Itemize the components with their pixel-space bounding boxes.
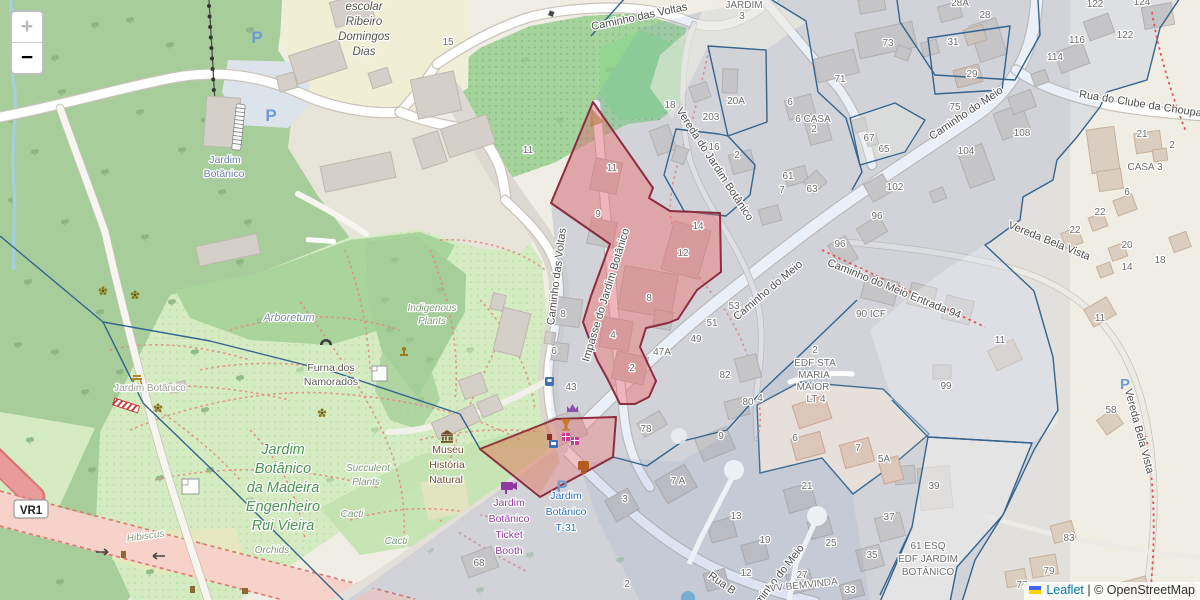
svg-text:Plants: Plants bbox=[352, 477, 380, 488]
svg-text:83: 83 bbox=[1063, 533, 1075, 544]
svg-text:EDF STA: EDF STA bbox=[794, 358, 836, 369]
svg-text:18: 18 bbox=[664, 100, 676, 111]
svg-text:35: 35 bbox=[866, 550, 878, 561]
svg-text:14: 14 bbox=[1121, 262, 1133, 273]
svg-text:História: História bbox=[429, 459, 465, 471]
svg-text:78: 78 bbox=[640, 424, 652, 435]
svg-text:Arboretum: Arboretum bbox=[262, 312, 314, 324]
svg-text:58: 58 bbox=[1105, 405, 1117, 416]
svg-text:7: 7 bbox=[779, 185, 785, 196]
svg-text:122: 122 bbox=[1087, 0, 1104, 10]
svg-text:102: 102 bbox=[887, 182, 904, 193]
svg-text:71: 71 bbox=[834, 74, 846, 85]
svg-text:14: 14 bbox=[692, 221, 704, 232]
svg-text:6: 6 bbox=[551, 346, 557, 357]
svg-text:CASA 3: CASA 3 bbox=[1127, 162, 1162, 173]
svg-text:3: 3 bbox=[622, 494, 628, 505]
svg-text:104: 104 bbox=[958, 146, 975, 157]
svg-text:75: 75 bbox=[949, 102, 961, 113]
svg-text:13: 13 bbox=[730, 511, 742, 522]
svg-text:49: 49 bbox=[690, 334, 702, 345]
svg-text:Plants: Plants bbox=[418, 316, 446, 327]
svg-text:Indigenous: Indigenous bbox=[408, 303, 457, 314]
svg-text:BOTÂNICO: BOTÂNICO bbox=[902, 565, 954, 578]
svg-text:Namorados: Namorados bbox=[304, 376, 358, 388]
svg-text:7: 7 bbox=[855, 443, 861, 454]
svg-text:6: 6 bbox=[787, 97, 793, 108]
svg-text:Ticket: Ticket bbox=[495, 529, 523, 541]
svg-text:7 A: 7 A bbox=[671, 476, 686, 487]
svg-text:VR1: VR1 bbox=[20, 505, 43, 517]
svg-text:Jardim: Jardim bbox=[209, 154, 241, 166]
svg-text:Rui Vieira: Rui Vieira bbox=[252, 518, 315, 534]
svg-text:29: 29 bbox=[966, 69, 978, 80]
svg-text:Jardim: Jardim bbox=[493, 497, 525, 509]
svg-text:Natural: Natural bbox=[429, 474, 463, 486]
svg-text:4: 4 bbox=[757, 393, 763, 404]
svg-text:96: 96 bbox=[871, 211, 883, 222]
svg-text:80: 80 bbox=[742, 397, 754, 408]
svg-text:4: 4 bbox=[610, 330, 616, 341]
svg-text:Jardim: Jardim bbox=[550, 490, 582, 502]
svg-text:T-31: T-31 bbox=[555, 522, 576, 534]
svg-text:61: 61 bbox=[782, 171, 794, 182]
svg-text:2: 2 bbox=[629, 363, 635, 374]
svg-text:124: 124 bbox=[1134, 0, 1151, 8]
svg-text:2: 2 bbox=[812, 345, 818, 356]
svg-text:12: 12 bbox=[677, 248, 689, 259]
svg-text:Furna dos: Furna dos bbox=[307, 362, 354, 374]
svg-text:82: 82 bbox=[719, 370, 731, 381]
svg-text:MARIA: MARIA bbox=[798, 370, 830, 381]
svg-text:53: 53 bbox=[728, 301, 740, 312]
svg-text:63: 63 bbox=[806, 184, 818, 195]
svg-text:20: 20 bbox=[1121, 240, 1133, 251]
svg-text:11: 11 bbox=[1095, 313, 1106, 324]
svg-text:Cacti: Cacti bbox=[341, 509, 365, 520]
svg-text:P: P bbox=[251, 28, 262, 47]
svg-text:67: 67 bbox=[863, 133, 875, 144]
svg-text:9: 9 bbox=[595, 209, 601, 220]
svg-text:33: 33 bbox=[844, 585, 856, 596]
svg-text:20A: 20A bbox=[727, 96, 745, 107]
svg-text:Booth: Booth bbox=[495, 545, 523, 557]
svg-text:Succulent: Succulent bbox=[346, 463, 391, 474]
svg-text:EDF JARDIM: EDF JARDIM bbox=[898, 554, 958, 565]
svg-text:73: 73 bbox=[882, 38, 894, 49]
svg-text:2: 2 bbox=[811, 124, 817, 135]
svg-text:99: 99 bbox=[940, 381, 952, 392]
svg-text:12: 12 bbox=[740, 568, 752, 579]
svg-text:11: 11 bbox=[607, 163, 618, 174]
svg-text:21: 21 bbox=[1136, 129, 1148, 140]
svg-text:Dias: Dias bbox=[352, 46, 375, 58]
svg-text:8: 8 bbox=[560, 309, 566, 320]
svg-text:21: 21 bbox=[801, 481, 813, 492]
svg-text:Museu: Museu bbox=[432, 444, 464, 456]
svg-text:39: 39 bbox=[928, 481, 940, 492]
svg-text:90 ICF: 90 ICF bbox=[856, 309, 886, 320]
svg-text:Botânico: Botânico bbox=[489, 513, 530, 525]
svg-text:Botânico: Botânico bbox=[255, 461, 311, 477]
svg-text:28: 28 bbox=[979, 10, 991, 21]
svg-text:51: 51 bbox=[706, 318, 718, 329]
svg-text:61 ESQ: 61 ESQ bbox=[910, 541, 945, 552]
svg-text:116: 116 bbox=[1069, 35, 1085, 46]
svg-text:Botânico: Botânico bbox=[204, 168, 245, 180]
svg-text:P: P bbox=[265, 106, 276, 125]
svg-text:43: 43 bbox=[565, 382, 577, 393]
svg-text:Cacti: Cacti bbox=[385, 536, 409, 547]
svg-text:escolar: escolar bbox=[345, 1, 383, 13]
svg-text:JARDIM: JARDIM bbox=[725, 0, 762, 11]
svg-text:22: 22 bbox=[1069, 225, 1081, 236]
svg-text:5A: 5A bbox=[878, 454, 891, 465]
svg-text:Orchids: Orchids bbox=[255, 545, 289, 556]
svg-text:15: 15 bbox=[442, 37, 454, 48]
svg-text:9: 9 bbox=[718, 431, 724, 442]
svg-text:MAIOR: MAIOR bbox=[797, 382, 830, 393]
svg-text:31: 31 bbox=[947, 37, 959, 48]
svg-text:Jardim Botânico: Jardim Botânico bbox=[114, 383, 186, 394]
svg-text:da Madeira: da Madeira bbox=[247, 480, 320, 496]
svg-text:Engenheiro: Engenheiro bbox=[246, 499, 320, 515]
svg-text:6: 6 bbox=[1124, 187, 1130, 198]
svg-text:65: 65 bbox=[878, 144, 890, 155]
svg-text:122: 122 bbox=[1117, 30, 1134, 41]
svg-text:79: 79 bbox=[1043, 566, 1055, 577]
svg-text:203: 203 bbox=[703, 112, 720, 123]
svg-text:108: 108 bbox=[1014, 128, 1031, 139]
svg-text:37: 37 bbox=[883, 512, 895, 523]
svg-text:8: 8 bbox=[646, 293, 652, 304]
svg-text:LT 4: LT 4 bbox=[806, 394, 826, 405]
svg-text:2: 2 bbox=[1169, 140, 1175, 151]
svg-text:16: 16 bbox=[708, 142, 720, 153]
svg-text:28A: 28A bbox=[951, 0, 969, 9]
svg-text:2: 2 bbox=[734, 150, 740, 161]
svg-text:22: 22 bbox=[1094, 207, 1106, 218]
svg-text:96: 96 bbox=[834, 239, 846, 250]
svg-text:114: 114 bbox=[1047, 52, 1063, 63]
svg-text:27: 27 bbox=[796, 570, 808, 581]
svg-text:Jardim: Jardim bbox=[260, 442, 305, 458]
svg-text:47A: 47A bbox=[653, 347, 671, 358]
svg-text:Botânico: Botânico bbox=[546, 506, 587, 518]
svg-text:25: 25 bbox=[825, 538, 837, 549]
svg-text:68: 68 bbox=[473, 558, 485, 569]
svg-text:6: 6 bbox=[792, 433, 798, 444]
svg-text:3: 3 bbox=[739, 11, 745, 22]
svg-text:11: 11 bbox=[523, 145, 534, 156]
svg-text:Domingos: Domingos bbox=[338, 31, 390, 43]
svg-text:Ribeiro: Ribeiro bbox=[346, 16, 383, 28]
svg-text:18: 18 bbox=[1154, 255, 1166, 266]
svg-text:2: 2 bbox=[624, 579, 630, 590]
svg-text:11: 11 bbox=[995, 335, 1006, 346]
svg-text:19: 19 bbox=[759, 535, 771, 546]
